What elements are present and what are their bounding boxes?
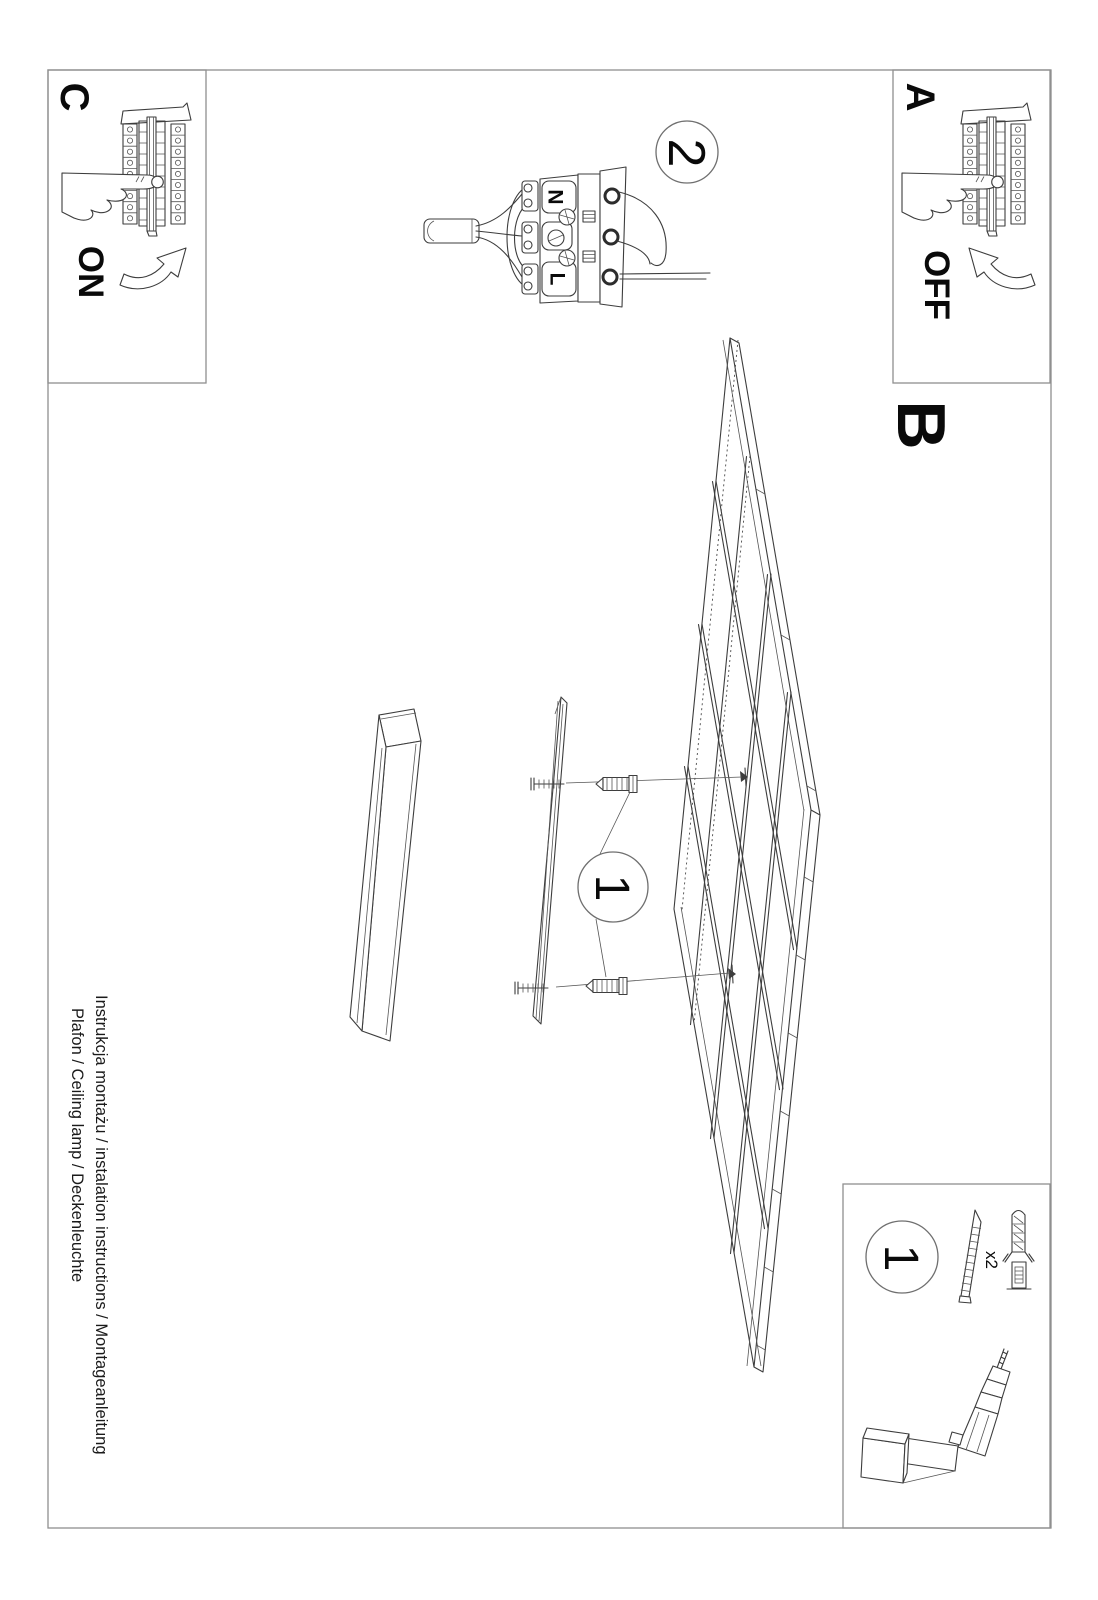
step2-badge: 2 (657, 139, 715, 168)
step-label-a: A (898, 83, 942, 112)
mounting-strip (533, 697, 567, 1024)
step-label-b: B (883, 400, 959, 449)
footer: Instrukcja montażu / instalation instruc… (68, 995, 110, 1455)
toolbox-quantity: x2 (982, 1251, 1001, 1269)
panel-a-box (893, 70, 1050, 383)
terminal-label-l: L (546, 273, 569, 286)
wall-plug-icon (586, 978, 627, 995)
instruction-sheet: C ON A OFF B 2 (0, 0, 1098, 1600)
terminal-mid-strip (578, 174, 600, 302)
ceiling-panel (674, 338, 820, 1372)
toolbox-screw-icon (959, 1210, 981, 1303)
switch-state-on-label: ON (71, 246, 110, 299)
breaker-panel-icon (902, 103, 1031, 236)
off-arrow-icon (969, 248, 1035, 289)
step-label-c: C (52, 83, 96, 112)
lamp-bar (350, 709, 421, 1041)
step1-mounting-diagram: 1 (350, 338, 820, 1372)
toolbox: 1 x2 (861, 1210, 1034, 1483)
on-arrow-icon (120, 248, 186, 289)
sheet-drawing: C ON A OFF B 2 (0, 0, 1098, 1600)
wall-plug-icon (596, 776, 637, 793)
terminal-block: N L (540, 167, 626, 307)
step2-wiring-diagram: 2 N L (424, 121, 718, 307)
switch-state-off-label: OFF (917, 250, 956, 320)
footer-title: Instrukcja montażu / instalation instruc… (92, 995, 110, 1455)
drill-icon (861, 1349, 1010, 1483)
output-wires (617, 192, 710, 279)
step1-badge: 1 (585, 875, 638, 902)
ferrule-terminals (522, 181, 538, 294)
toolbox-badge: 1 (874, 1245, 927, 1272)
breaker-panel-icon (62, 103, 191, 236)
footer-product: Plafon / Ceiling lamp / Deckenleuchte (68, 1008, 86, 1282)
terminal-label-n: N (544, 189, 567, 204)
step-panel-c: C ON (52, 83, 191, 299)
toolbox-wall-plug-icon (1003, 1211, 1034, 1290)
step-panel-a: A OFF (898, 83, 1035, 320)
screw-icon (531, 778, 564, 790)
supply-cable-icon (424, 219, 479, 243)
panel-c-box (48, 70, 206, 383)
screw-icon (515, 982, 548, 994)
